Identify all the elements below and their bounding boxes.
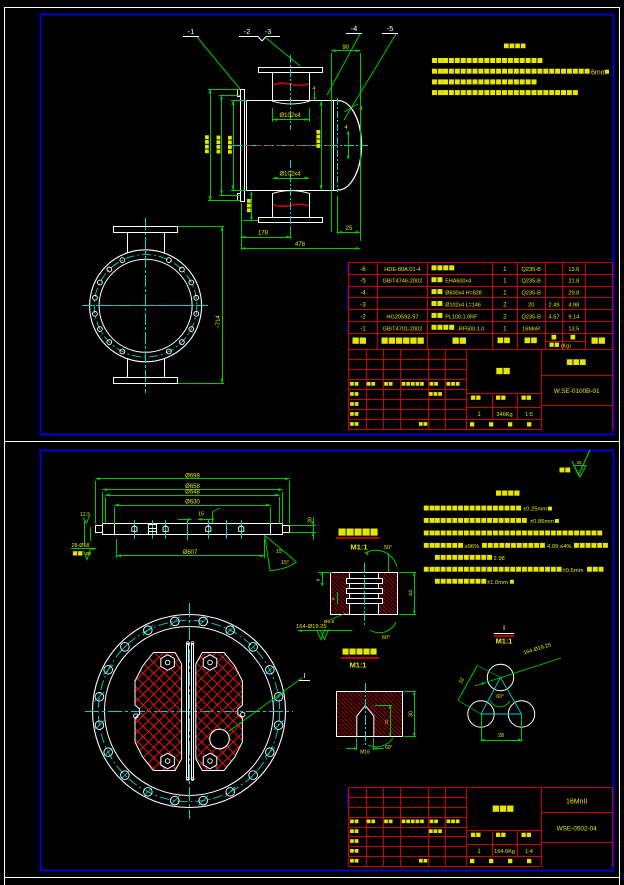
svg-text:-6: -6 <box>360 266 366 273</box>
svg-text:164.6Kg: 164.6Kg <box>494 849 515 855</box>
svg-text:-2: -2 <box>360 313 366 320</box>
svg-text:60°: 60° <box>382 635 390 641</box>
svg-text:±0.6mm: ±0.6mm <box>563 568 584 574</box>
svg-text:1:5: 1:5 <box>525 412 533 418</box>
svg-text:2.49: 2.49 <box>549 303 560 309</box>
svg-text:30: 30 <box>409 711 415 717</box>
svg-text:50°: 50° <box>384 545 392 551</box>
svg-text:Ø102x4 L=146: Ø102x4 L=146 <box>445 303 481 309</box>
svg-text:I: I <box>304 673 306 680</box>
svg-text:-3: -3 <box>360 302 366 309</box>
svg-text:60°: 60° <box>496 694 504 700</box>
svg-text:15: 15 <box>198 511 204 517</box>
svg-text:Q235-B: Q235-B <box>522 291 542 297</box>
svg-text:16MnII: 16MnII <box>566 798 587 805</box>
svg-text:4.98: 4.98 <box>568 303 579 309</box>
svg-text:-2: -2 <box>244 27 251 36</box>
svg-text:Ø2: Ø2 <box>86 551 92 556</box>
svg-text:4: 4 <box>331 597 337 600</box>
svg-text:20: 20 <box>528 303 534 309</box>
svg-text:28: 28 <box>498 733 504 739</box>
svg-text:±0.25mm: ±0.25mm <box>523 507 547 513</box>
svg-text:Ø648: Ø648 <box>185 490 200 496</box>
svg-text:M1:1: M1:1 <box>350 661 367 670</box>
svg-text:Ø102x4: Ø102x4 <box>279 113 301 119</box>
svg-text:±1.0mm: ±1.0mm <box>487 580 508 586</box>
svg-text:WSE-0502-04: WSE-0502-04 <box>557 825 598 832</box>
svg-text:≥96%: ≥96% <box>465 544 480 550</box>
svg-text:-RF600-1.0: -RF600-1.0 <box>457 326 484 332</box>
svg-text:Ø607: Ø607 <box>183 550 198 556</box>
svg-text:M1:1: M1:1 <box>350 543 368 552</box>
svg-text:1: 1 <box>503 278 507 285</box>
svg-text:GB/T4701-2002: GB/T4701-2002 <box>383 326 423 332</box>
svg-text:9.14: 9.14 <box>568 314 579 320</box>
svg-text:-5: -5 <box>387 24 394 33</box>
svg-text:-5: -5 <box>360 278 366 285</box>
svg-text:(Kg): (Kg) <box>561 344 571 350</box>
svg-text:13.6: 13.6 <box>568 267 579 273</box>
svg-text:1: 1 <box>503 290 507 297</box>
svg-text:25: 25 <box>346 226 353 232</box>
svg-text:W.SE-0100B-01: W.SE-0100B-01 <box>554 388 600 395</box>
svg-text:GB/T4746-2002: GB/T4746-2002 <box>383 279 423 285</box>
svg-text:22: 22 <box>384 719 390 725</box>
svg-text:164-Ø19.25: 164-Ø19.25 <box>296 624 327 630</box>
svg-text:30: 30 <box>308 517 314 523</box>
svg-text:60°: 60° <box>385 745 393 751</box>
svg-text:PL100-1.0RF: PL100-1.0RF <box>445 314 478 320</box>
svg-text:Q235-B: Q235-B <box>522 314 542 320</box>
svg-text:HG20592-97: HG20592-97 <box>386 314 418 320</box>
svg-text:25: 25 <box>577 460 583 465</box>
svg-text:I: I <box>503 623 505 632</box>
svg-text:-1: -1 <box>360 325 366 332</box>
svg-text:21.8: 21.8 <box>568 279 579 285</box>
svg-text:346Kg: 346Kg <box>496 412 512 418</box>
svg-text:-4: -4 <box>360 290 366 297</box>
svg-text:15°: 15° <box>281 560 289 566</box>
svg-text:HDE-80A.01-4: HDE-80A.01-4 <box>384 267 420 273</box>
svg-text:478: 478 <box>295 242 306 248</box>
svg-text:≤4%: ≤4% <box>560 544 572 550</box>
svg-text:Q235-B: Q235-B <box>522 279 542 285</box>
svg-text:~714: ~714 <box>216 315 222 329</box>
svg-text:EHA600x4: EHA600x4 <box>445 279 471 285</box>
svg-text:Ø600x4 H=828: Ø600x4 H=828 <box>445 291 481 297</box>
svg-text:M16: M16 <box>360 750 370 756</box>
svg-text:2.98: 2.98 <box>494 556 505 562</box>
svg-text:-4: -4 <box>351 24 358 33</box>
svg-text:4.09;: 4.09; <box>547 544 560 550</box>
svg-text:Ø6.8: Ø6.8 <box>324 619 335 625</box>
svg-text:6mm: 6mm <box>591 70 607 77</box>
svg-text:90: 90 <box>342 45 349 51</box>
svg-text:44: 44 <box>409 590 415 596</box>
svg-text:Q235-B: Q235-B <box>522 267 542 273</box>
svg-text:1:4: 1:4 <box>525 849 533 855</box>
svg-text:29.8: 29.8 <box>568 291 579 297</box>
svg-text:13.5: 13.5 <box>568 326 579 332</box>
svg-text:Ø102x4: Ø102x4 <box>279 172 301 178</box>
svg-text:2: 2 <box>503 313 507 320</box>
svg-text:Ø630: Ø630 <box>185 500 200 506</box>
svg-text:1: 1 <box>503 325 507 332</box>
svg-text:4.57: 4.57 <box>549 314 560 320</box>
svg-text:8: 8 <box>316 578 322 581</box>
svg-text:2: 2 <box>503 302 507 309</box>
svg-text:-3: -3 <box>265 27 272 36</box>
svg-text:16MnR: 16MnR <box>522 326 540 332</box>
svg-text:4: 4 <box>344 125 347 131</box>
svg-text:±0.86mm: ±0.86mm <box>530 519 554 525</box>
svg-text:-1: -1 <box>188 27 195 36</box>
svg-text:1: 1 <box>503 266 507 273</box>
svg-text:15: 15 <box>276 549 282 555</box>
svg-text:M1:1: M1:1 <box>496 637 513 646</box>
svg-text:178: 178 <box>258 231 269 237</box>
svg-text:Ø698: Ø698 <box>185 473 200 479</box>
